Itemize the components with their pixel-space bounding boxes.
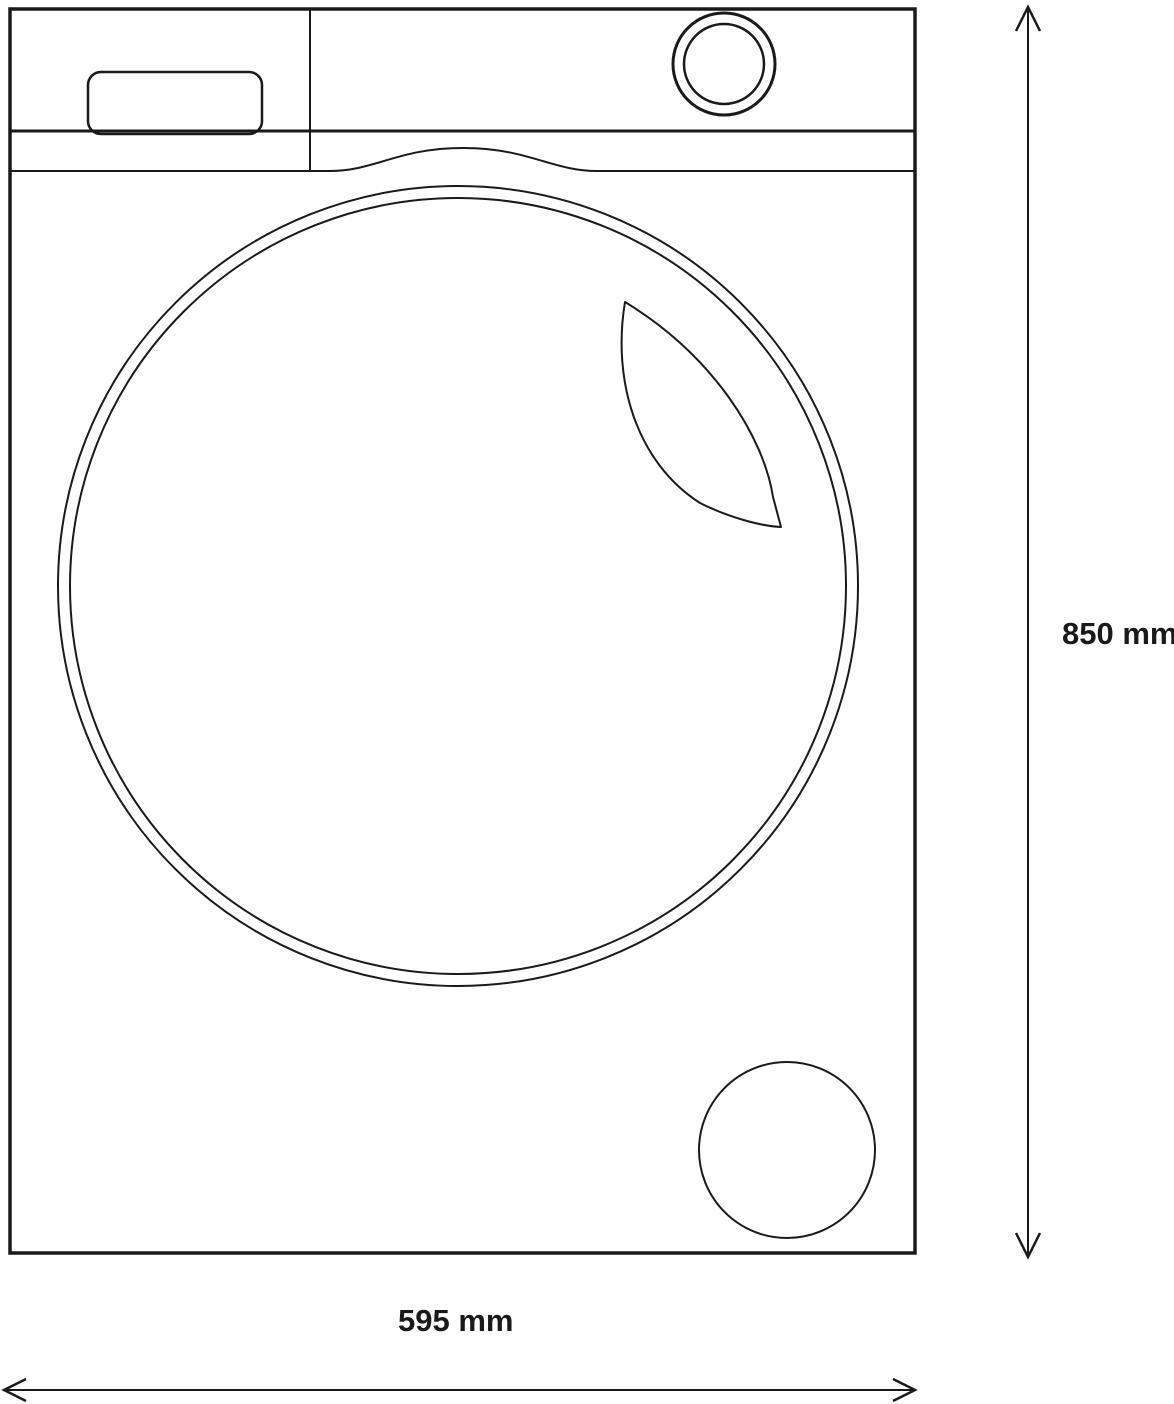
washing-machine-dimension-diagram: 850 mm 595 mm (0, 0, 1174, 1404)
width-dimension-label: 595 mm (398, 1305, 513, 1336)
door-glass-reflection (622, 302, 781, 527)
height-dimension-arrow (1016, 7, 1040, 1257)
porthole-door-glass (70, 198, 846, 974)
filter-access-cap (699, 1062, 875, 1238)
washing-machine (10, 9, 915, 1253)
height-dimension-label: 850 mm (1062, 618, 1174, 649)
porthole-door-outer-ring (58, 186, 858, 986)
door-top-trim (10, 148, 915, 171)
machine-body-outline (10, 9, 915, 1253)
control-knob-outer (673, 13, 775, 115)
control-knob-inner (684, 24, 764, 104)
technical-drawing (0, 0, 1174, 1404)
detergent-drawer (88, 72, 262, 134)
width-dimension-arrow (4, 1379, 915, 1401)
